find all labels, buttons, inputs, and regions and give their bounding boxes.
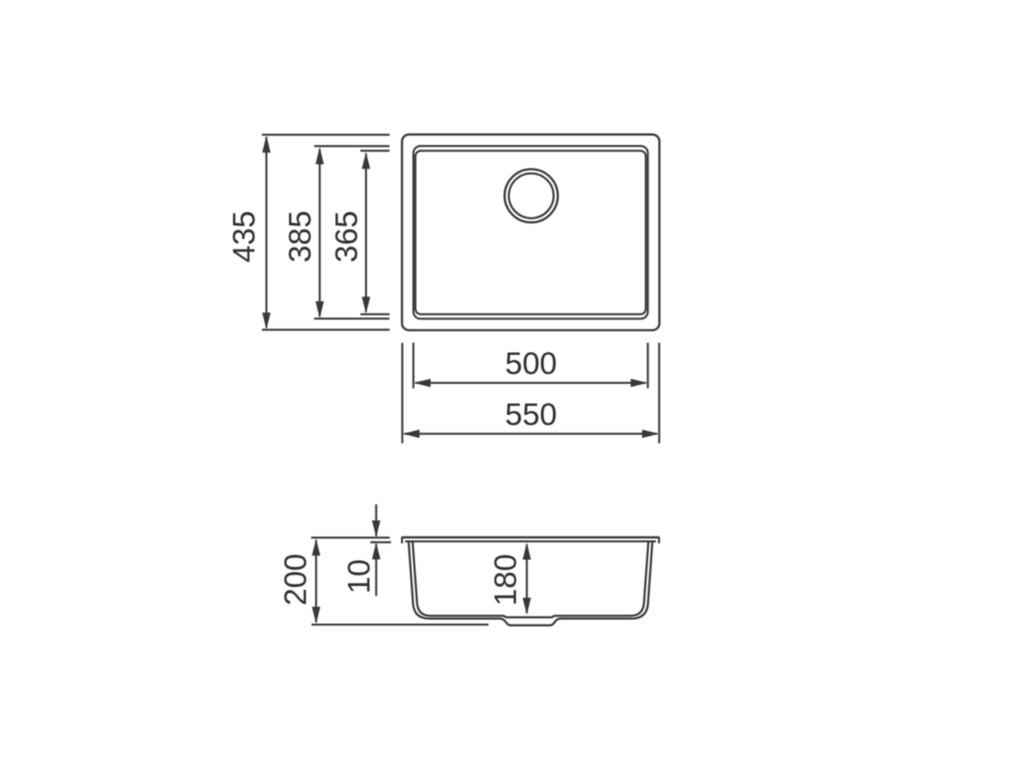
svg-text:500: 500 xyxy=(505,346,557,381)
svg-text:365: 365 xyxy=(329,211,364,263)
svg-text:550: 550 xyxy=(505,397,557,432)
svg-text:180: 180 xyxy=(488,554,523,606)
svg-text:435: 435 xyxy=(227,211,262,263)
svg-text:200: 200 xyxy=(278,554,313,606)
svg-text:10: 10 xyxy=(341,559,376,594)
svg-text:385: 385 xyxy=(283,211,318,263)
